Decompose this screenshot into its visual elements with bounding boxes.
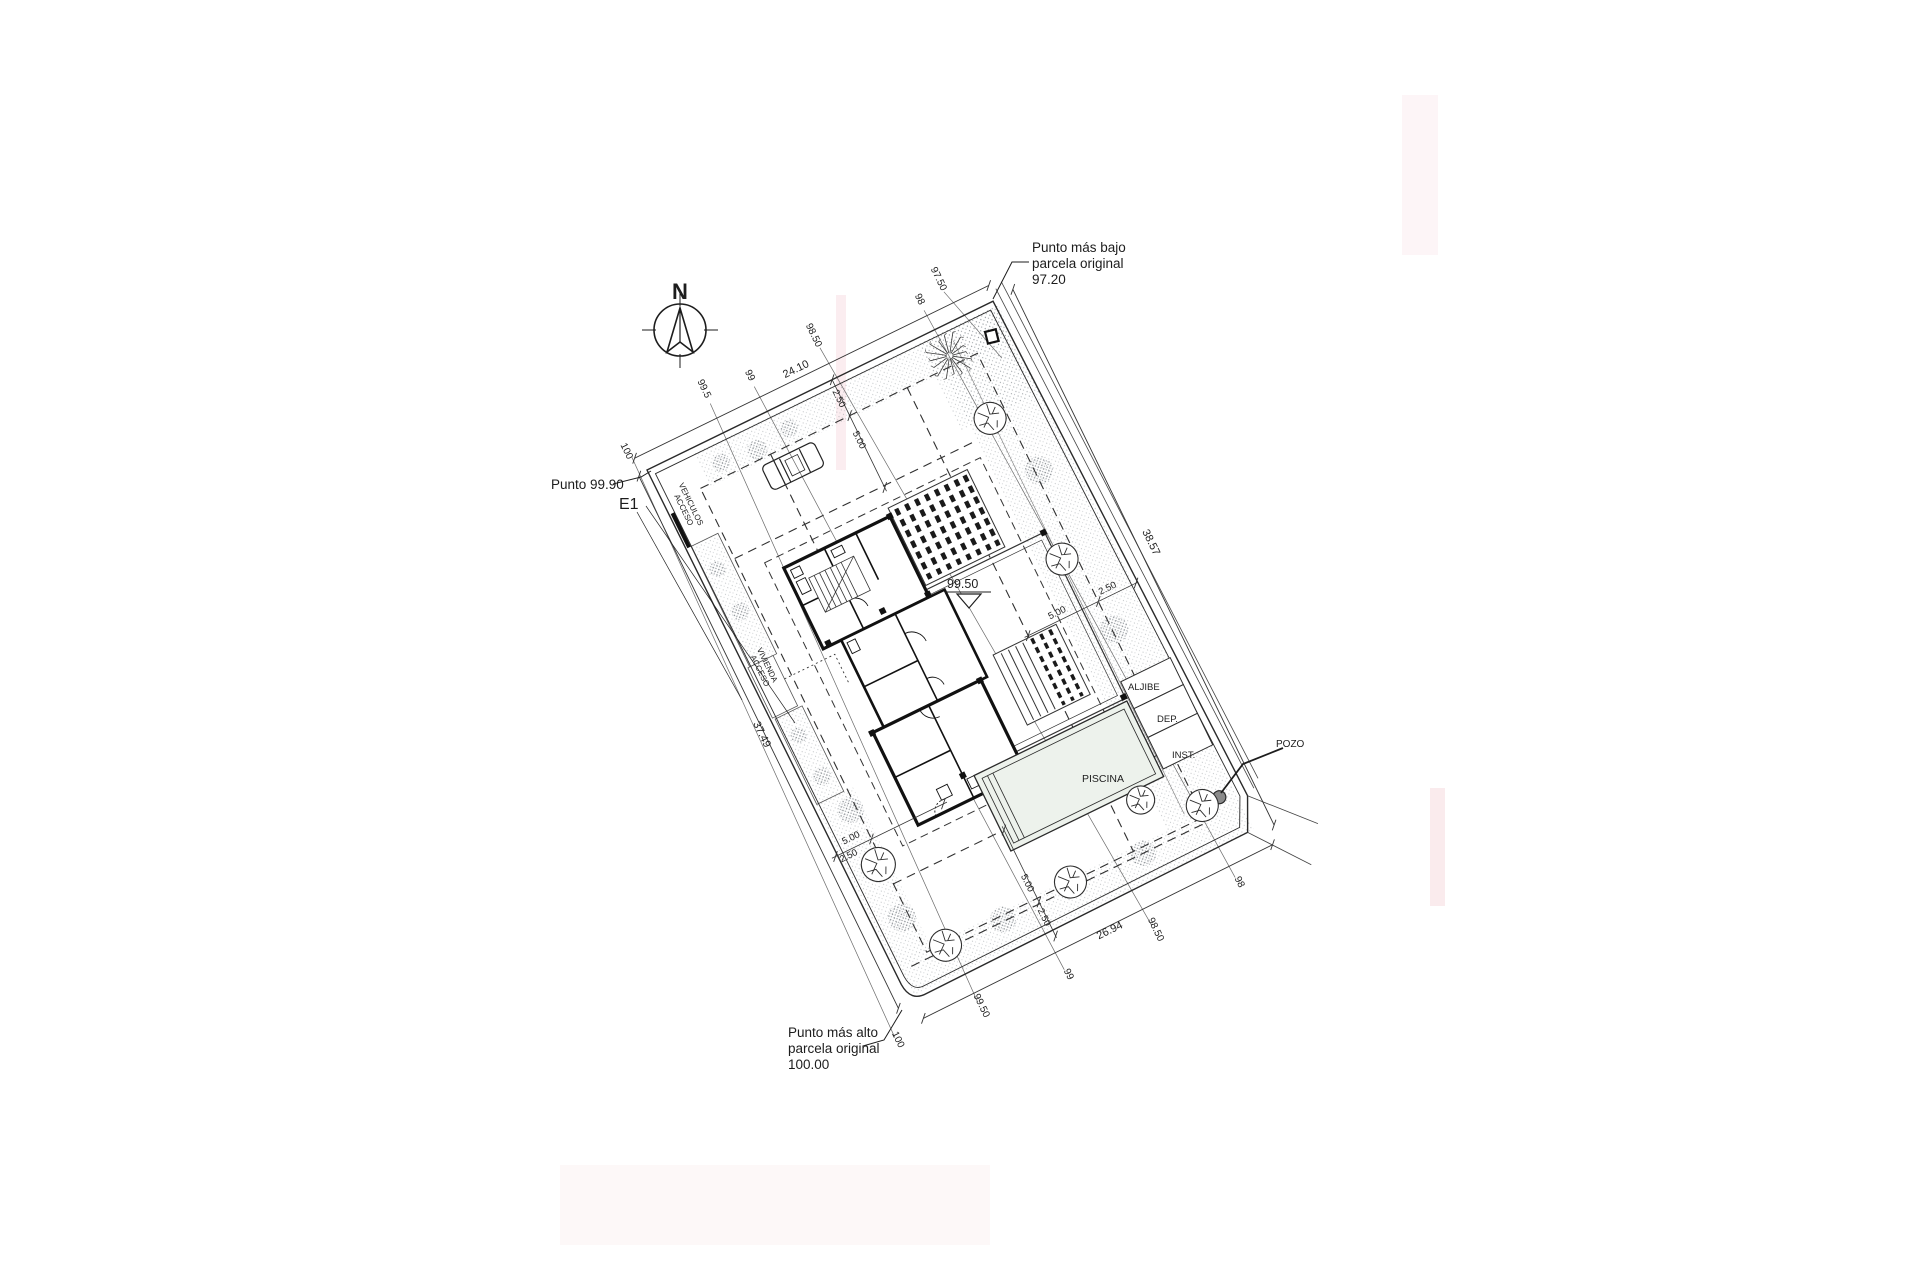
annotation-label: 100.00 <box>788 1057 829 1072</box>
dim-label: 26.94 <box>1095 919 1125 942</box>
site-plan-page: { "title": "Plano de situación / emplaza… <box>0 0 1920 1280</box>
annotation-label: 97.20 <box>1032 272 1066 287</box>
dim-label: 98 <box>1232 875 1247 890</box>
annotation-label: INST. <box>1172 750 1195 761</box>
annotation-label: parcela original <box>788 1041 880 1056</box>
parcel-plan: 24.1026.9438.5737.4910099.59998.509897.5… <box>594 219 1335 1066</box>
dim-label: 98 <box>912 292 927 307</box>
dim-label: 24.10 <box>781 358 811 381</box>
dim-label: 37.49 <box>750 720 773 750</box>
dim-label: 99.5 <box>694 378 713 401</box>
boundary-marker <box>985 329 999 343</box>
site-plan-drawing: 24.1026.9438.5737.4910099.59998.509897.5… <box>0 0 1920 1280</box>
annotation-label: 99.50 <box>947 577 978 591</box>
dim-label: 98.50 <box>1145 916 1166 944</box>
dim-label: 97.50 <box>928 265 949 293</box>
annotation-label: Punto 99.90 <box>551 477 624 492</box>
annotation-label: ALJIBE <box>1128 682 1160 693</box>
dim-label: 100 <box>889 1030 906 1050</box>
dim-label: 99 <box>742 368 757 383</box>
annotation-label: N <box>672 279 688 304</box>
annotation-label: Punto más alto <box>788 1025 878 1040</box>
annotation-label: parcela original <box>1032 256 1124 271</box>
annotation-label: PISCINA <box>1082 773 1124 785</box>
annotation-label: DEP. <box>1157 714 1178 725</box>
dim-label: 99.50 <box>971 992 992 1020</box>
dim-label: 38.57 <box>1139 527 1162 557</box>
annotation-label: Punto más bajo <box>1032 240 1126 255</box>
annotation-label: E1 <box>619 496 639 513</box>
dim-label: 99 <box>1061 967 1076 982</box>
dim-label: 98.50 <box>803 322 824 350</box>
annotation-label: POZO <box>1276 739 1305 750</box>
